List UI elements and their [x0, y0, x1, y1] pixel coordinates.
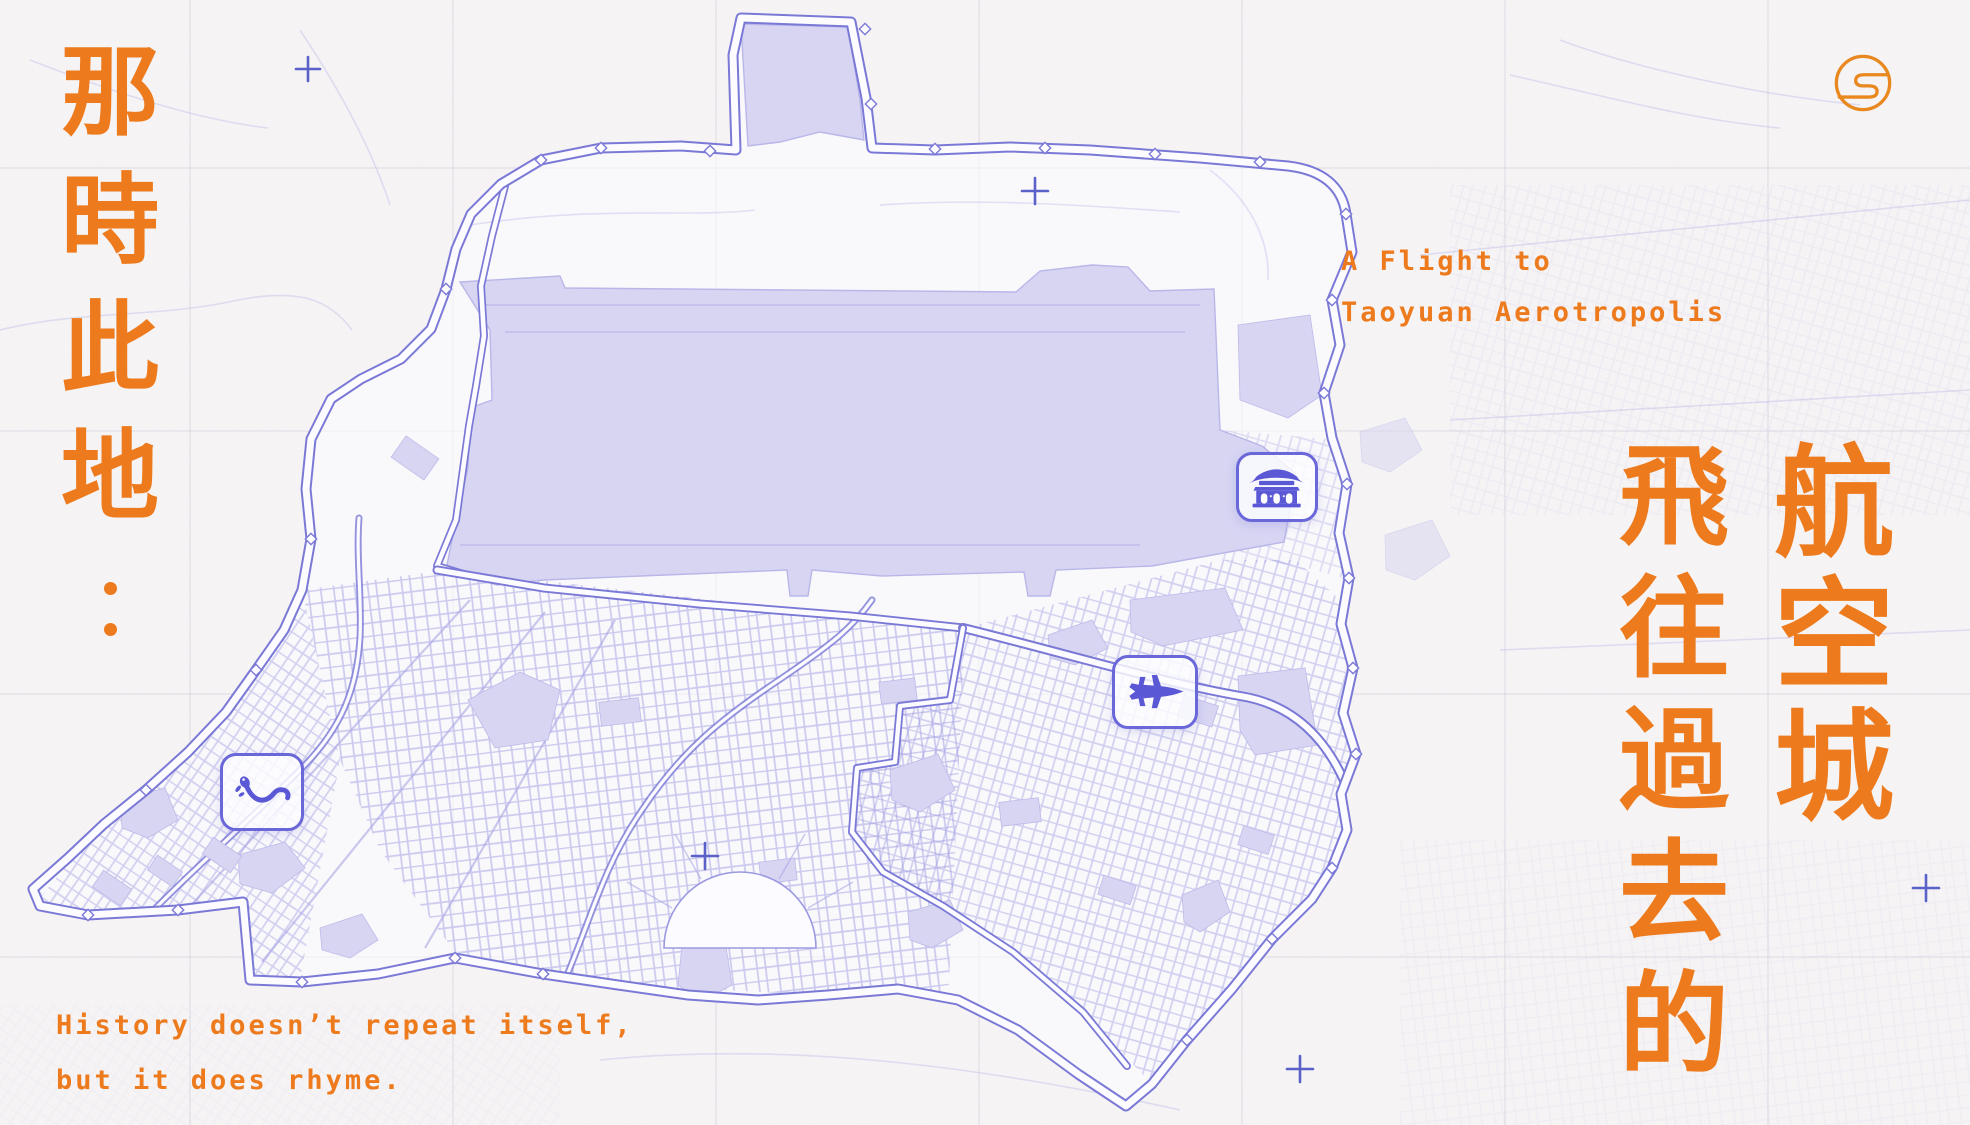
subtitle-line2: Taoyuan Aerotropolis	[1341, 287, 1726, 338]
fighter-jet-icon	[1124, 665, 1186, 718]
jet-marker-badge[interactable]	[1112, 655, 1198, 729]
brand-logo[interactable]	[1832, 52, 1894, 114]
poster: 那時此地 航空城 飛往過去的 A Flight to Taoyuan Aerot…	[0, 0, 1970, 1125]
quote-line1: History doesn’t repeat itself,	[56, 998, 634, 1053]
quote-line2: but it does rhyme.	[56, 1053, 634, 1108]
s-monogram-icon	[1832, 52, 1894, 114]
headline-zh-col-left: 飛往過去的	[1612, 442, 1736, 1080]
temple-marker-badge[interactable]	[1236, 452, 1318, 522]
subtitle-line1: A Flight to	[1341, 236, 1726, 287]
north-lobe-area	[741, 24, 864, 146]
quote-en: History doesn’t repeat itself, but it do…	[56, 998, 634, 1108]
airport-area	[446, 265, 1296, 596]
salamander-marker-badge[interactable]	[220, 753, 304, 831]
salamander-icon	[232, 764, 293, 820]
subtitle-en: A Flight to Taoyuan Aerotropolis	[1341, 236, 1726, 338]
headline-zh-col-right: 航空城	[1768, 444, 1900, 828]
temple-icon	[1247, 462, 1306, 512]
title-zh-vertical: 那時此地	[54, 44, 166, 636]
